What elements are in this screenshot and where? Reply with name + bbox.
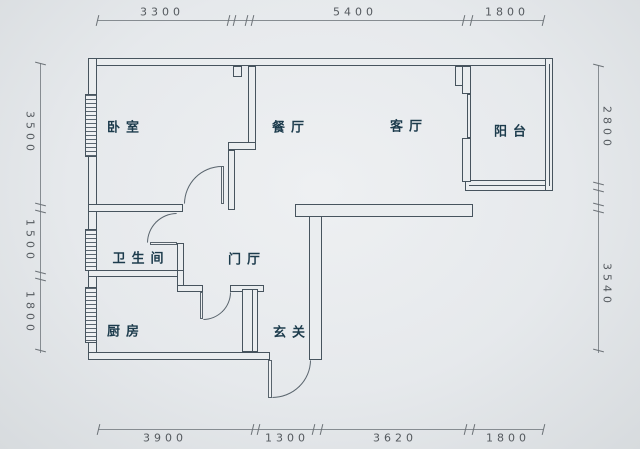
wall-top-flue-notch	[233, 66, 242, 77]
balcony-bottom-glass-line	[469, 185, 549, 186]
dimension-right-3540: 3540	[601, 263, 614, 307]
wall-living-south-exterior	[295, 204, 473, 217]
bedroom-door-arc	[184, 166, 222, 204]
room-label-balcony: 阳台	[488, 121, 532, 140]
room-label-kitchen: 厨房	[101, 321, 145, 340]
dimension-left-1500: 1500	[24, 219, 37, 263]
bathroom-door-arc	[147, 213, 177, 243]
room-label-bedroom: 卧室	[101, 117, 145, 136]
dimension-bottom-1800: 1800	[486, 432, 530, 445]
dimension-left-3500: 3500	[24, 111, 37, 155]
dim-tick	[542, 15, 546, 26]
wall-kitchen-entry-duct	[242, 289, 258, 352]
wall-bedroom-dining-lower	[228, 150, 235, 210]
room-label-living: 客厅	[384, 116, 428, 135]
duct-inner-line	[252, 290, 253, 351]
kitchen-door-arc	[203, 292, 231, 320]
room-label-hall: 门厅	[222, 249, 266, 268]
dimension-left-1800: 1800	[24, 291, 37, 335]
dimension-bottom-3620: 3620	[373, 432, 417, 445]
wall-living-balcony-notch	[455, 66, 463, 86]
window-bedroom	[85, 94, 97, 157]
dimension-line-top	[97, 20, 543, 21]
wall-bottom-exterior	[88, 352, 270, 360]
wall-bedroom-south	[88, 204, 183, 212]
wall-bathroom-east	[177, 243, 184, 273]
room-label-bathroom: 卫生间	[106, 248, 169, 267]
window-kitchen	[85, 287, 97, 343]
wall-living-balcony-lower	[462, 138, 471, 182]
room-label-dining: 餐厅	[266, 117, 310, 136]
dim-tick	[542, 424, 546, 435]
wall-bathroom-south	[88, 270, 180, 277]
window-living-balcony	[467, 94, 471, 138]
entry-door-arc	[272, 360, 311, 398]
balcony-right-glass-line	[549, 64, 550, 186]
dimension-line-right	[598, 65, 599, 353]
dimension-right-2800: 2800	[601, 106, 614, 150]
dimension-top-1800: 1800	[485, 6, 529, 19]
window-bathroom	[85, 229, 97, 271]
wall-top-exterior	[88, 58, 553, 66]
floor-plan-canvas: 卧室 餐厅 客厅 阳台 卫生间 门厅 厨房 玄关 3300 5400 1800 …	[0, 0, 640, 449]
wall-bedroom-dining-jog	[228, 142, 256, 150]
dimension-top-3300: 3300	[140, 6, 184, 19]
wall-bedroom-dining-upper	[248, 66, 256, 146]
wall-living-balcony-upper	[462, 66, 471, 94]
dimension-bottom-1300: 1300	[265, 432, 309, 445]
dimension-bottom-3900: 3900	[143, 432, 187, 445]
dimension-top-5400: 5400	[333, 6, 377, 19]
room-label-entry: 玄关	[267, 322, 311, 341]
dimension-line-left	[40, 63, 41, 353]
wall-kitchen-north-left	[177, 285, 203, 292]
